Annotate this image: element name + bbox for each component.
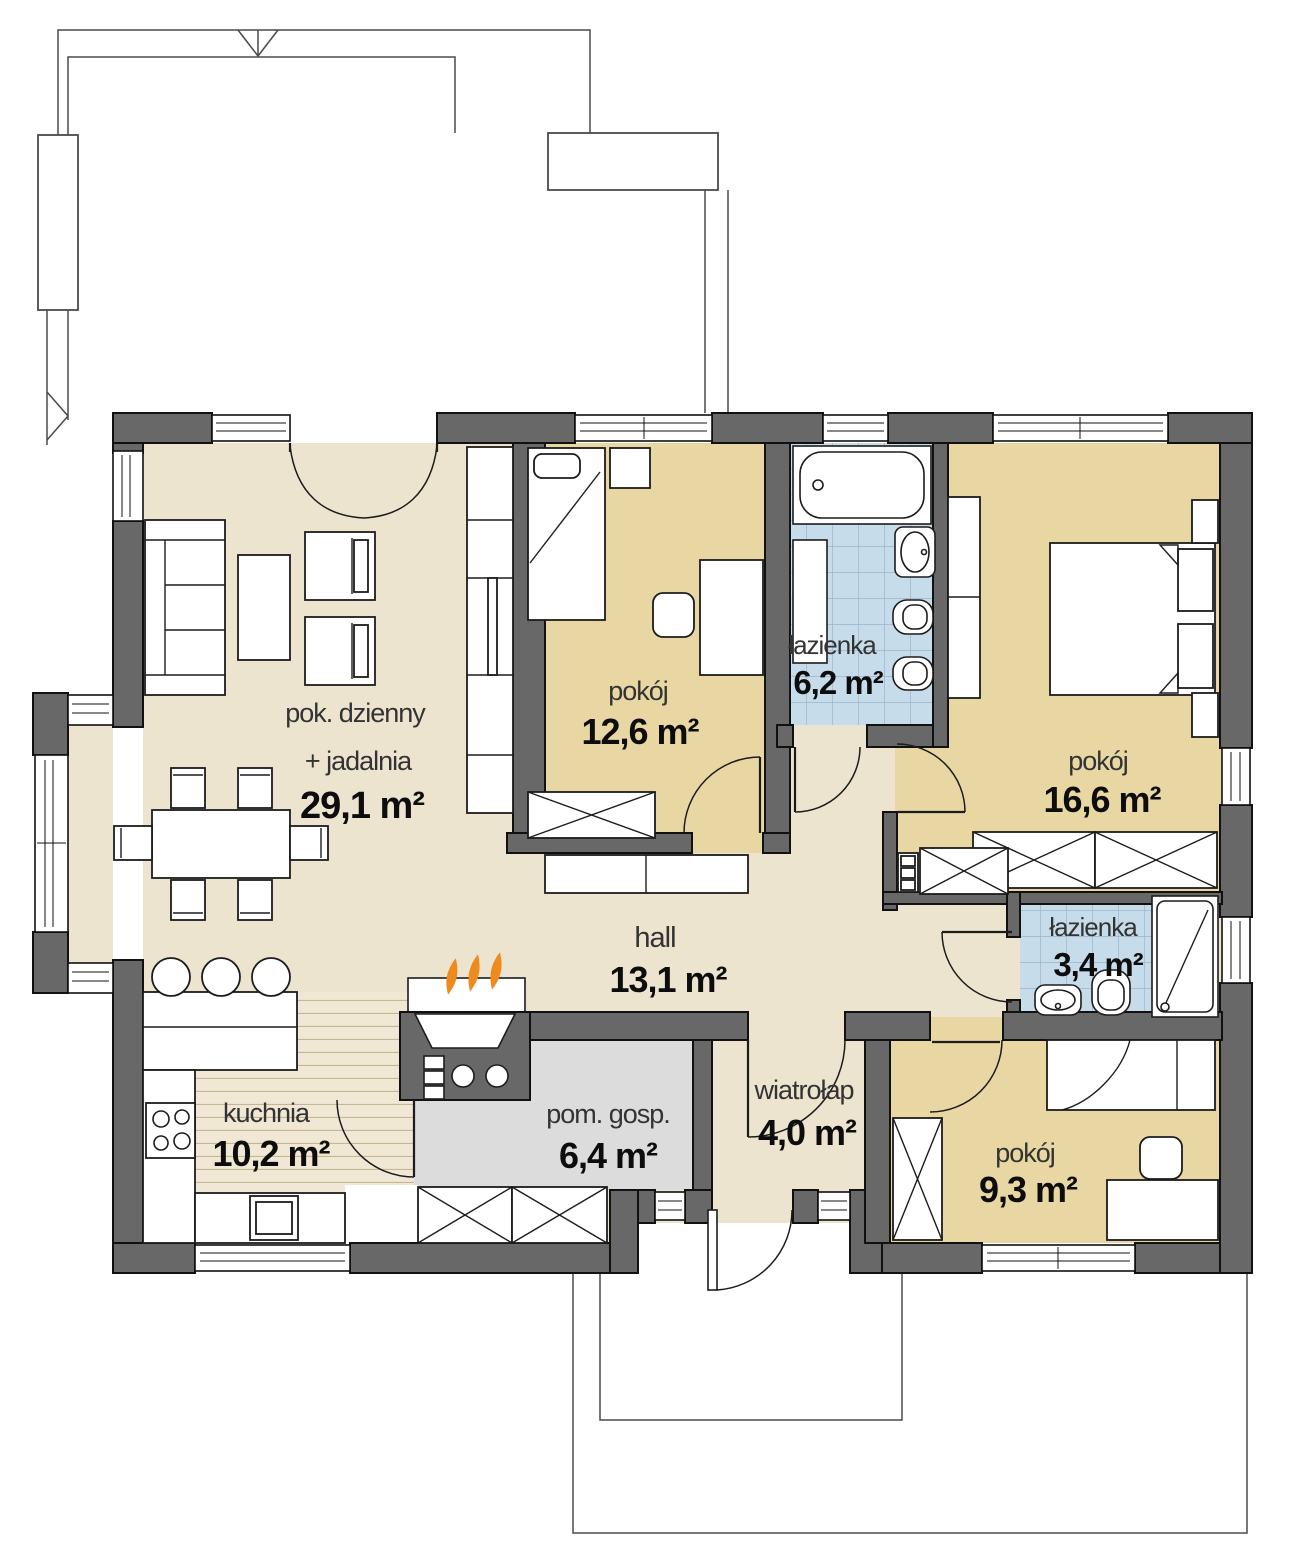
wall-bath1-south-pier bbox=[777, 725, 793, 747]
label-room1-name: pokój bbox=[608, 676, 668, 706]
floor-utility-passage bbox=[414, 1100, 530, 1190]
label-room2-name: pokój bbox=[1068, 746, 1128, 776]
hall-furniture bbox=[545, 855, 748, 893]
wall-bottom-2 bbox=[350, 1243, 638, 1273]
wall-bay-bottom bbox=[33, 932, 68, 993]
label-bath2-area: 3,4 m² bbox=[1053, 946, 1143, 983]
label-bath1-area: 6,2 m² bbox=[793, 664, 883, 701]
wall-room1-bath1 bbox=[765, 443, 790, 853]
wall-top-3 bbox=[712, 413, 823, 443]
window-bay-main bbox=[35, 755, 68, 932]
desk bbox=[700, 560, 763, 675]
porch-recess bbox=[638, 1223, 882, 1243]
desk-chair bbox=[653, 593, 694, 637]
window-kitchen bbox=[195, 1245, 350, 1271]
threshold-room-12-6 bbox=[692, 833, 763, 853]
tv-screen bbox=[488, 578, 497, 675]
bidet bbox=[893, 657, 933, 690]
window-left-living bbox=[113, 451, 143, 521]
wall-top-1 bbox=[113, 413, 212, 443]
dining-chair bbox=[290, 826, 328, 860]
nook-wardrobe bbox=[920, 848, 1008, 894]
window-bay-bottom bbox=[68, 963, 113, 993]
shower bbox=[1152, 896, 1218, 1017]
chimney-left bbox=[38, 135, 78, 310]
wall-bottom-1 bbox=[113, 1243, 195, 1273]
wall-bath2-west-upper bbox=[1007, 892, 1020, 937]
wall-utility-vestibule bbox=[693, 1040, 712, 1190]
wall-top-5 bbox=[1168, 413, 1252, 443]
wardrobe bbox=[528, 792, 655, 838]
label-kitchen-area: 10,2 m² bbox=[212, 1133, 330, 1174]
wardrobe bbox=[973, 832, 1217, 888]
nightstand bbox=[610, 448, 650, 488]
wall-top-2 bbox=[437, 413, 575, 443]
armchair-1 bbox=[305, 532, 375, 600]
window-bathroom-3-4-right bbox=[1222, 917, 1250, 983]
bar-stool bbox=[252, 958, 290, 996]
window-top-living bbox=[212, 415, 290, 441]
window-room-16-6-right bbox=[1222, 748, 1250, 805]
wall-bottom-step bbox=[610, 1190, 638, 1273]
label-bath1-name: łazienka bbox=[788, 630, 877, 660]
washbasin bbox=[1035, 985, 1081, 1015]
wall-recess-1 bbox=[638, 1190, 655, 1223]
terrace-outline-bottom bbox=[573, 1273, 1247, 1533]
wall-vestibule-room3 bbox=[865, 1040, 890, 1243]
terrace-outline-top-inner bbox=[68, 57, 455, 135]
floor-plan-page: pok. dzienny + jadalnia 29,1 m² pokój 12… bbox=[0, 0, 1297, 1558]
window-room-9-3 bbox=[982, 1245, 1135, 1271]
threshold-room-9-3 bbox=[930, 1017, 1003, 1040]
label-living-area: 29,1 m² bbox=[300, 785, 424, 827]
label-vestibule-area: 4,0 m² bbox=[758, 1112, 857, 1153]
desk-chair bbox=[1140, 1137, 1182, 1179]
fireplace-hearth bbox=[408, 978, 525, 1012]
window-utility-small bbox=[655, 1192, 685, 1220]
label-utility-name: pom. gosp. bbox=[546, 1099, 670, 1129]
label-living-name: pok. dzienny bbox=[285, 698, 426, 728]
nook-shelf bbox=[898, 853, 918, 892]
kitchen-counter-top bbox=[143, 992, 297, 1070]
utility-wardrobes bbox=[418, 1187, 607, 1243]
terrace-outline-top bbox=[58, 30, 590, 135]
label-kitchen-name: kuchnia bbox=[223, 1098, 311, 1128]
terrace-outline-left-drop bbox=[47, 310, 68, 445]
label-room3-name: pokój bbox=[995, 1138, 1055, 1168]
cooktop bbox=[146, 1103, 195, 1158]
bed-double bbox=[1050, 543, 1215, 695]
floor-kitchen-corner bbox=[345, 1185, 418, 1243]
hall-cabinet bbox=[545, 855, 748, 893]
wall-bath1-room2 bbox=[933, 443, 948, 747]
dining-chair bbox=[114, 826, 152, 860]
roof-apex-mark bbox=[238, 30, 278, 56]
label-room3-area: 9,3 m² bbox=[979, 1169, 1078, 1210]
wall-bottom-3 bbox=[882, 1243, 982, 1273]
armchair-2 bbox=[305, 617, 375, 685]
coffee-table bbox=[238, 555, 290, 660]
bathtub bbox=[793, 446, 931, 524]
toilet bbox=[893, 600, 933, 634]
wall-recess-3 bbox=[793, 1190, 818, 1223]
kitchen-counter-bottom bbox=[195, 1193, 345, 1243]
bar-stools bbox=[152, 958, 290, 996]
dining-table bbox=[152, 810, 290, 878]
terrace-outline-right-drop bbox=[705, 190, 728, 413]
nightstand bbox=[1192, 693, 1218, 737]
washbasin bbox=[895, 527, 935, 577]
label-utility-area: 6,4 m² bbox=[559, 1135, 658, 1176]
window-room-12-6 bbox=[575, 415, 712, 441]
bar-stool bbox=[152, 958, 190, 996]
nightstand bbox=[1192, 500, 1218, 543]
bed-single bbox=[1047, 1040, 1215, 1110]
wall-hall-south-2 bbox=[845, 1012, 930, 1040]
wall-right-bottom bbox=[1220, 983, 1252, 1273]
wall-room1-south-pier bbox=[763, 833, 790, 853]
wall-left-upper bbox=[113, 521, 143, 727]
wall-left-lower bbox=[113, 960, 143, 1273]
desk bbox=[1107, 1180, 1218, 1240]
dining-chair bbox=[171, 880, 205, 920]
wall-right-mid bbox=[1220, 805, 1252, 917]
built-in-closet bbox=[948, 497, 980, 698]
label-room2-area: 16,6 m² bbox=[1043, 779, 1161, 820]
label-living-name2: + jadalnia bbox=[305, 746, 413, 776]
window-bay-top bbox=[68, 695, 113, 725]
dining-chair bbox=[238, 768, 272, 808]
label-room1-area: 12,6 m² bbox=[581, 711, 699, 752]
dining-chair bbox=[171, 768, 205, 808]
tv-wall-unit bbox=[467, 447, 513, 813]
floor-plan-svg: pok. dzienny + jadalnia 29,1 m² pokój 12… bbox=[0, 0, 1297, 1558]
wardrobe bbox=[893, 1118, 942, 1240]
bed-single bbox=[528, 448, 605, 620]
window-bathroom-6-2 bbox=[823, 415, 888, 441]
wall-right-top bbox=[1220, 443, 1252, 748]
window-room-16-6-top bbox=[993, 415, 1168, 441]
label-hall-name: hall bbox=[634, 922, 675, 954]
wall-top-4 bbox=[888, 413, 993, 443]
fireplace-firebox bbox=[415, 1014, 515, 1048]
bar-stool bbox=[202, 958, 240, 996]
label-hall-area: 13,1 m² bbox=[609, 959, 727, 1000]
wall-bay-top bbox=[33, 693, 68, 755]
dining-chair bbox=[238, 880, 272, 920]
label-bath2-name: łazienka bbox=[1049, 912, 1138, 942]
window-vestibule-small bbox=[818, 1192, 850, 1220]
sofa bbox=[145, 520, 225, 695]
chimney-top bbox=[548, 133, 718, 190]
label-vestibule-name: wiatrołap bbox=[753, 1075, 853, 1105]
